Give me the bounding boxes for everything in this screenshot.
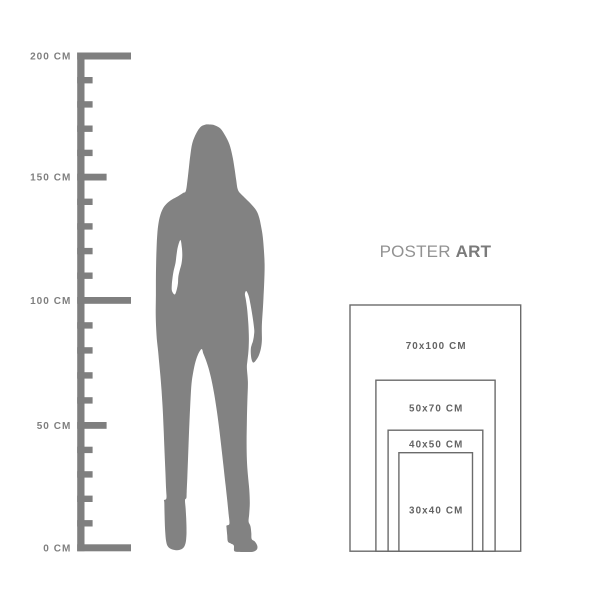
svg-text:POSTER ART: POSTER ART — [380, 242, 492, 261]
svg-text:150 CM: 150 CM — [30, 173, 71, 184]
svg-text:70x100 CM: 70x100 CM — [406, 341, 467, 352]
svg-text:100 CM: 100 CM — [30, 296, 71, 307]
svg-text:40x50 CM: 40x50 CM — [409, 440, 463, 451]
svg-text:30x40 CM: 30x40 CM — [409, 506, 463, 517]
svg-text:200 CM: 200 CM — [30, 52, 71, 63]
svg-text:50 CM: 50 CM — [37, 421, 72, 432]
svg-text:0 CM: 0 CM — [43, 543, 71, 554]
svg-text:50x70 CM: 50x70 CM — [409, 404, 463, 415]
